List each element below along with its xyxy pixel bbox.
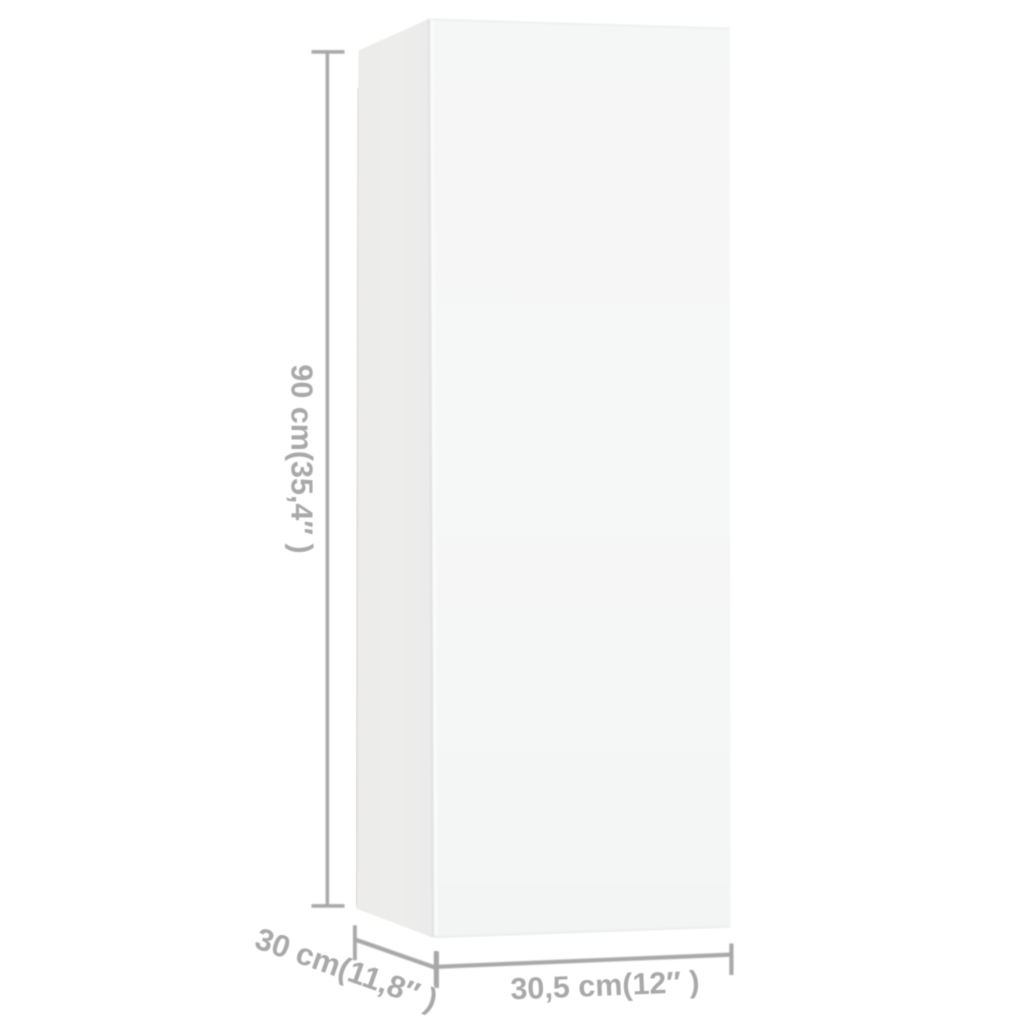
svg-text:90 cm(35,4″ ): 90 cm(35,4″ ) [284, 364, 318, 553]
